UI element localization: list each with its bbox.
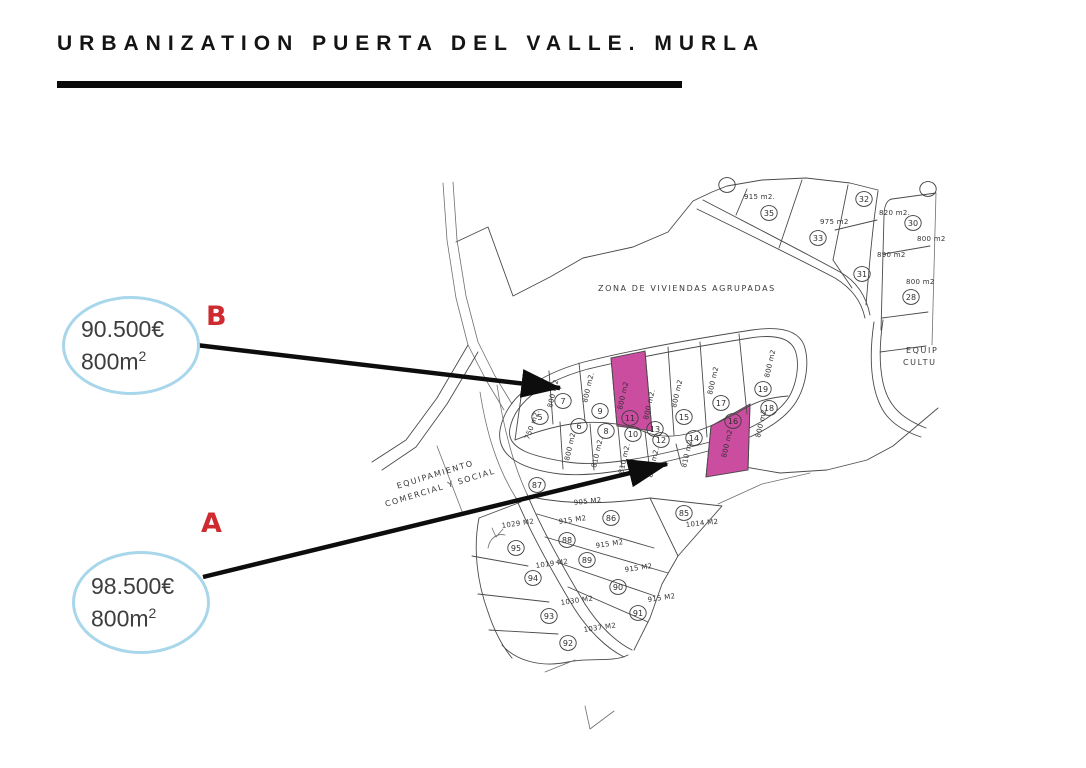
plot-area-label: 975 m2 <box>820 218 849 226</box>
plot-area-label: 800 m2. <box>754 406 769 438</box>
plot-area-label: 800 m2 <box>917 235 946 243</box>
plot-size: 800m2 <box>91 600 207 633</box>
plot-area-label: 810 m2 <box>680 439 694 469</box>
plot-number: 6 <box>576 422 581 431</box>
plot-area-label: 800 m2 <box>763 349 777 379</box>
plot-area-label: 1030 M2 <box>560 595 593 607</box>
plot-area-label: 915 M2 <box>595 538 624 550</box>
plot-area-label: 800 m2 <box>706 366 720 396</box>
plot-9: 9800 m2. <box>581 371 608 418</box>
plot-area-label: 800 m2 <box>906 278 935 286</box>
flyer-page: URBANIZATION PUERTA DEL VALLE. MURLA <box>0 0 1086 768</box>
plot-number: 95 <box>511 544 521 553</box>
check-mark-sketch <box>585 706 614 729</box>
plot-number: 31 <box>857 270 867 279</box>
arrow-to-plot-11 <box>196 345 560 388</box>
plot-5: 5750 m2. <box>523 409 548 441</box>
plot-number: 35 <box>764 209 774 218</box>
plot-87: 87 <box>529 478 545 493</box>
plot-number: 92 <box>563 639 573 648</box>
price-callout-b: 90.500€ 800m2 <box>62 296 200 395</box>
plot-area-label: 890 m2 <box>877 251 906 259</box>
plot-number: 91 <box>633 609 643 618</box>
plot-94: 941019 M2 <box>525 558 569 586</box>
plot-19: 19800 m2 <box>755 349 778 397</box>
plot-number: 32 <box>859 195 869 204</box>
upper-right-parcels <box>697 180 936 352</box>
plot-area-label: 915 M2 <box>624 562 653 574</box>
plot-number: 28 <box>906 293 916 302</box>
plot-area-label: 915 m2. <box>744 193 775 201</box>
price-value: 90.500€ <box>81 316 197 343</box>
plot-area-label: 1037 M2 <box>583 622 616 634</box>
plot-number: 19 <box>758 385 768 394</box>
plot-number: 89 <box>582 556 592 565</box>
price-callout-a: 98.500€ 800m2 <box>72 551 210 654</box>
plot-number: 93 <box>544 612 554 621</box>
plot-number: 17 <box>716 399 726 408</box>
plot-area-label: 800 m2. <box>581 371 596 403</box>
plot-size: 800m2 <box>81 343 197 376</box>
label-letter-b: B <box>206 301 227 332</box>
plot-90: 90915 M2 <box>610 562 653 594</box>
plot-89: 89915 M2 <box>579 538 624 567</box>
plot-88: 88915 M2 <box>558 514 587 547</box>
plot-number: 12 <box>656 436 666 445</box>
plot-number: 94 <box>528 574 538 583</box>
plot-18: 18800 m2. <box>754 401 777 439</box>
price-value: 98.500€ <box>91 573 207 600</box>
plot-number: 88 <box>562 536 572 545</box>
plot-93: 931030 M2 <box>541 595 594 624</box>
plot-area-label: 810 m2. <box>617 442 632 474</box>
label-letter-a: A <box>201 508 222 539</box>
plot-area-label: 820 m2. <box>879 209 910 217</box>
plot-area-label: 915 M2 <box>647 592 676 604</box>
plot-number: 8 <box>603 427 608 436</box>
plot-8: 8810 m2. <box>590 424 614 469</box>
plot-85: 851014 M2 <box>676 506 719 529</box>
plot-95: 951029 M2 <box>501 518 534 556</box>
plot-number: 87 <box>532 481 542 490</box>
plot-number: 10 <box>628 430 638 439</box>
region-label: CULTU <box>903 358 937 367</box>
plot-area-label: 800 m2 <box>670 379 684 409</box>
region-label: ZONA DE VIVIENDAS AGRUPADAS <box>598 284 776 293</box>
plot-number: 11 <box>625 414 635 423</box>
plot-12: 12810 m2. <box>646 433 669 479</box>
plot-number: 16 <box>728 417 738 426</box>
plot-number: 30 <box>908 219 918 228</box>
plot-91: 91915 M2 <box>630 592 676 620</box>
plot-number: 85 <box>679 509 689 518</box>
plot-area-label: 1014 M2 <box>685 518 718 529</box>
region-label: EQUIP <box>906 346 938 355</box>
plot-15: 15800 m2 <box>670 379 692 425</box>
plot-number: 9 <box>597 407 602 416</box>
plot-28: 28800 m2 <box>903 278 935 304</box>
plot-92: 921037 M2 <box>560 622 617 651</box>
plot-number: 90 <box>613 583 623 592</box>
plot-number: 86 <box>606 514 616 523</box>
tree-symbol <box>488 528 505 548</box>
plot-17: 17800 m2 <box>706 366 729 411</box>
plot-number: 7 <box>560 397 565 406</box>
plot-31: 31890 m2 <box>854 251 906 281</box>
plot-30: 30800 m2 <box>905 216 946 243</box>
plot-33: 33975 m2 <box>810 218 849 245</box>
plot-number: 33 <box>813 234 823 243</box>
arrow-to-plot-16 <box>203 464 667 577</box>
plot-area-label: 800 m2 <box>563 432 577 462</box>
plot-14: 14810 m2 <box>680 431 702 469</box>
plot-32: 32820 m2. <box>856 192 910 217</box>
plot-area-label: 905 M2 <box>573 496 602 507</box>
plot-35: 35915 m2. <box>744 193 777 220</box>
plot-area-label: 800 m2 <box>546 379 560 409</box>
plot-number: 15 <box>679 413 689 422</box>
